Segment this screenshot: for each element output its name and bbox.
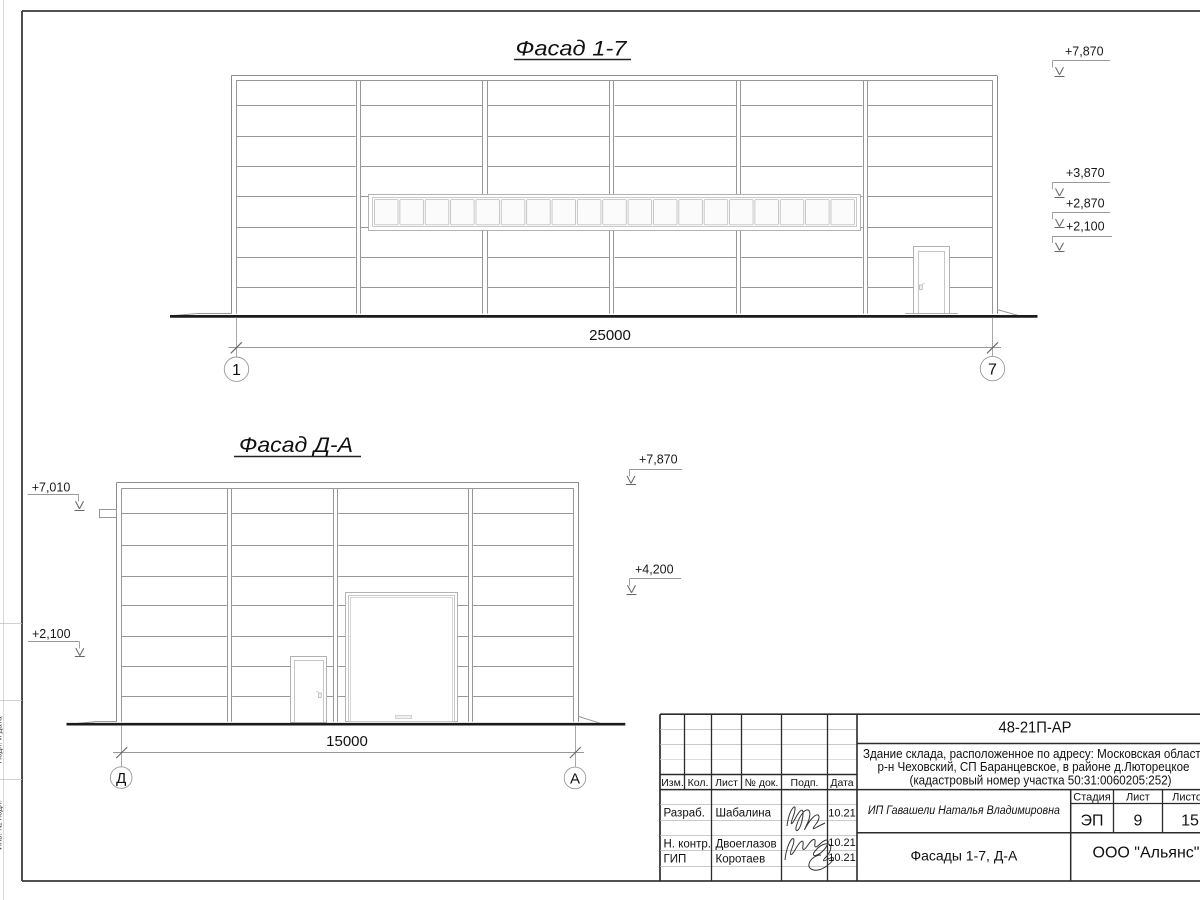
svg-text:ГИП: ГИП <box>664 853 687 865</box>
svg-text:Шабалина: Шабалина <box>716 808 772 820</box>
svg-text:10.21: 10.21 <box>828 807 856 819</box>
svg-text:Д: Д <box>116 770 126 787</box>
svg-text:А: А <box>570 770 580 787</box>
svg-text:Двоеглазов: Двоеглазов <box>716 839 777 851</box>
svg-text:ЭП: ЭП <box>1081 813 1104 830</box>
svg-text:Подп. и дата: Подп. и дата <box>0 716 4 764</box>
svg-text:Коротаев: Коротаев <box>716 854 766 866</box>
svg-text:Инв. № подл.: Инв. № подл. <box>0 800 4 850</box>
svg-text:Фасад 1-7: Фасад 1-7 <box>516 37 628 60</box>
svg-text:р-н Чеховский, СП Баранцевское: р-н Чеховский, СП Баранцевское, в районе… <box>878 760 1190 774</box>
svg-text:1: 1 <box>232 362 241 379</box>
svg-text:48-21П-АР: 48-21П-АР <box>999 719 1072 736</box>
svg-text:ИП Гавашели Наталья Владимиров: ИП Гавашели Наталья Владимировна <box>868 803 1060 817</box>
svg-text:Подп.: Подп. <box>791 777 819 789</box>
svg-text:9: 9 <box>1133 813 1142 830</box>
svg-text:№ док.: № док. <box>745 777 779 789</box>
svg-text:Фасады 1-7, Д-А: Фасады 1-7, Д-А <box>910 847 1017 863</box>
svg-text:Дата: Дата <box>830 777 853 789</box>
svg-text:Лист: Лист <box>1126 791 1150 803</box>
svg-text:Н. контр.: Н. контр. <box>664 838 711 850</box>
svg-text:+2,100: +2,100 <box>32 627 71 641</box>
svg-text:10.21: 10.21 <box>828 837 856 849</box>
svg-text:+2,100: +2,100 <box>1066 220 1105 234</box>
svg-text:15000: 15000 <box>326 733 368 750</box>
svg-text:25000: 25000 <box>589 327 631 344</box>
svg-text:Изм.: Изм. <box>661 777 684 789</box>
svg-text:+4,200: +4,200 <box>635 563 674 577</box>
svg-text:Фасад Д-А: Фасад Д-А <box>239 434 353 457</box>
svg-text:Здание склада, расположенное п: Здание склада, расположенное по адресу: … <box>863 747 1200 761</box>
svg-text:+7,870: +7,870 <box>1065 45 1104 59</box>
svg-text:Лист: Лист <box>715 777 738 789</box>
svg-text:+3,870: +3,870 <box>1066 166 1105 180</box>
svg-text:+7,010: +7,010 <box>32 481 71 495</box>
svg-text:+7,870: +7,870 <box>639 453 678 467</box>
svg-text:Листов: Листов <box>1172 791 1200 803</box>
svg-text:Разраб.: Разраб. <box>664 807 705 819</box>
svg-text:10.21: 10.21 <box>828 852 856 864</box>
svg-text:Кол.: Кол. <box>688 777 709 789</box>
svg-text:7: 7 <box>988 361 997 378</box>
svg-text:+2,870: +2,870 <box>1066 197 1105 211</box>
svg-text:(кадастровый номер участка 50:: (кадастровый номер участка 50:31:0060205… <box>910 773 1172 787</box>
svg-text:15: 15 <box>1181 813 1199 830</box>
svg-text:ООО "Альянс": ООО "Альянс" <box>1093 845 1200 862</box>
svg-text:Стадия: Стадия <box>1073 791 1111 803</box>
